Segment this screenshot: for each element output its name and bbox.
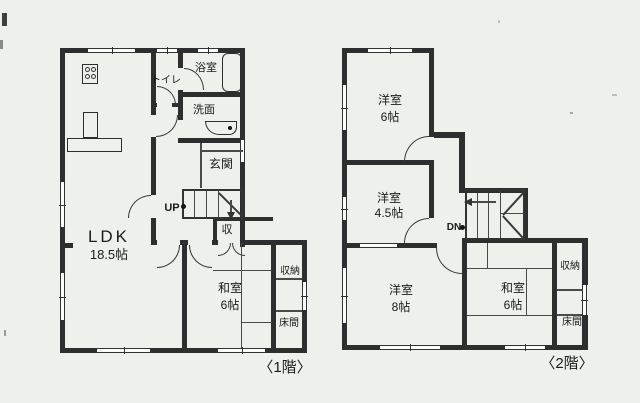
staircase-2f (465, 189, 525, 240)
room-label-tokonoma-1f: 床間 (275, 318, 303, 329)
detail-line (557, 289, 582, 291)
window (218, 348, 265, 353)
plan-linework-layer (0, 0, 640, 403)
stairs-down-label: DN (443, 222, 465, 233)
window (342, 85, 347, 130)
detail-line (276, 310, 302, 312)
detail-line (241, 243, 242, 348)
room-label-closet-1f: 収納 (276, 266, 304, 277)
room-label-ldk: LDK (82, 228, 136, 247)
detail-line (213, 270, 271, 271)
door-swing-arc (232, 243, 245, 256)
window (342, 268, 347, 323)
detail-line (241, 322, 272, 323)
room-size-washitsu-2f: 6帖 (496, 299, 530, 312)
room-size-western-8: 8帖 (384, 301, 418, 314)
sliding-door (360, 243, 397, 248)
stairs-up-label: UP (161, 202, 183, 214)
window-tick (124, 347, 125, 354)
window-tick (525, 344, 526, 351)
wall-segment (178, 138, 245, 143)
window-tick (112, 47, 113, 54)
stove-burner-icon (91, 67, 96, 72)
kitchen-counter (67, 138, 122, 152)
door-swing-arc (128, 195, 151, 218)
window-tick (242, 347, 243, 354)
window-tick (410, 344, 411, 351)
stair-arrow-left-icon (464, 198, 472, 206)
detail-line (467, 268, 552, 269)
wall-segment (459, 138, 465, 188)
window (380, 345, 440, 350)
window-tick (341, 296, 348, 297)
door-swing-arc (404, 218, 429, 243)
window (88, 48, 135, 53)
room-label-storage: 収 (216, 224, 238, 236)
window-tick (390, 47, 391, 54)
room-size-ldk: 18.5帖 (82, 248, 136, 262)
room-size-western-45: 4.5帖 (369, 207, 409, 220)
window (60, 182, 65, 227)
window (582, 285, 587, 315)
wall-segment (151, 218, 156, 240)
stair-arrow-shaft (471, 201, 496, 203)
stair-arrow-down-icon (227, 212, 235, 220)
wall-segment (182, 245, 187, 348)
door-swing-arc (436, 248, 462, 274)
window (342, 197, 347, 220)
kitchen-sink-icon (83, 112, 98, 138)
door-swing-arc (157, 86, 176, 105)
room-label-washitsu-1f: 和室 (211, 282, 249, 295)
wall-segment (245, 240, 307, 245)
scan-speckle (612, 94, 617, 96)
room-label-entrance: 玄関 (203, 158, 239, 171)
window-tick (581, 300, 588, 301)
scan-speckle (0, 40, 3, 49)
room-label-washroom: 洗面 (186, 104, 222, 116)
room-label-western-6: 洋室 (371, 94, 409, 107)
wall-segment (429, 162, 434, 218)
floor-plan-page: 浴室 トイレ 洗面 玄関 UP 収 LDK 18.5帖 和室 6帖 収納 床間 … (0, 0, 640, 403)
window-tick (341, 108, 348, 109)
room-size-western-6: 6帖 (373, 111, 407, 124)
window-tick (59, 297, 66, 298)
room-size-washitsu-1f: 6帖 (213, 299, 247, 312)
room-label-bath: 浴室 (188, 62, 224, 74)
entrance-step-line (202, 150, 243, 152)
wall-segment (178, 92, 245, 97)
window-tick (341, 209, 348, 210)
stove-burner-icon (85, 74, 90, 79)
wall-segment (151, 137, 156, 195)
room-label-tokonoma-2f: 床間 (558, 317, 586, 328)
window (60, 273, 65, 320)
scan-speckle (2, 13, 7, 26)
stove-icon (82, 64, 98, 84)
stove-burner-icon (91, 74, 96, 79)
door-swing-arc (218, 243, 231, 256)
door-swing-arc (157, 245, 180, 268)
window-tick (167, 47, 168, 54)
window (157, 48, 177, 53)
room-label-washitsu-2f: 和室 (494, 282, 532, 295)
window (368, 48, 412, 53)
window (97, 348, 150, 353)
detail-line (467, 315, 552, 316)
door-swing-arc (156, 115, 178, 137)
wall-segment (342, 243, 360, 248)
wall-segment (342, 345, 588, 350)
washbasin-drain-dot (228, 126, 232, 130)
floor2-caption: 〈2階〉 (535, 356, 599, 373)
window (505, 345, 545, 350)
window-tick (301, 296, 308, 297)
room-label-toilet: トイレ (150, 75, 182, 86)
room-label-western-45: 洋室 (370, 192, 408, 205)
wall-segment (397, 243, 437, 248)
window (198, 48, 218, 53)
window (302, 282, 307, 310)
detail-line (276, 278, 302, 280)
bathtub-icon (222, 53, 242, 92)
door-swing-arc (404, 136, 429, 162)
wall-segment (65, 243, 73, 248)
wall-segment (552, 243, 557, 350)
window-tick (208, 47, 209, 54)
scan-speckle (498, 20, 500, 23)
stove-burner-icon (85, 67, 90, 72)
wall-segment (462, 243, 467, 350)
window-tick (59, 205, 66, 206)
wall-segment (178, 48, 183, 68)
room-label-closet-2f: 収納 (556, 261, 584, 272)
door-swing-arc (189, 245, 212, 268)
room-label-western-8: 洋室 (382, 284, 420, 297)
floor1-caption: 〈1階〉 (253, 360, 317, 377)
scan-speckle (4, 330, 6, 336)
detail-line (487, 243, 488, 269)
wall-segment (429, 48, 434, 137)
detail-line (557, 314, 582, 316)
wall-segment (271, 240, 276, 353)
scan-speckle (570, 112, 573, 114)
